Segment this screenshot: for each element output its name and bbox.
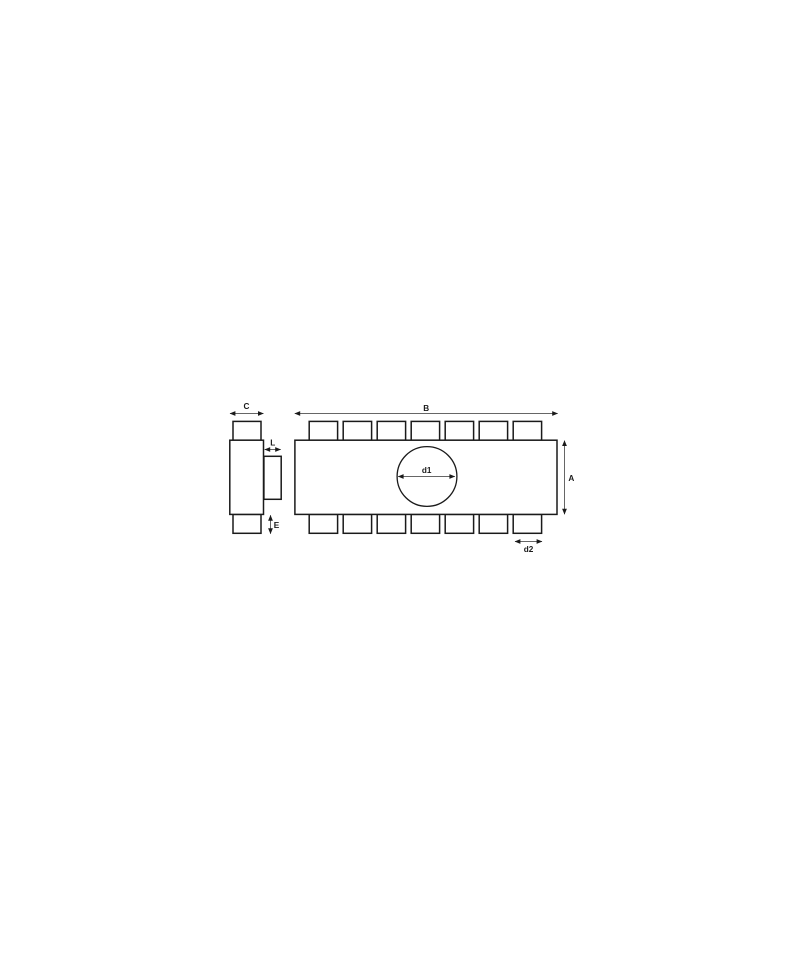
svg-text:L: L [270,439,275,448]
svg-text:A: A [568,474,574,483]
svg-text:B: B [423,404,429,413]
svg-text:E: E [274,521,280,530]
svg-text:d2: d2 [524,545,534,554]
svg-text:C: C [244,402,250,411]
svg-text:d1: d1 [422,466,432,475]
